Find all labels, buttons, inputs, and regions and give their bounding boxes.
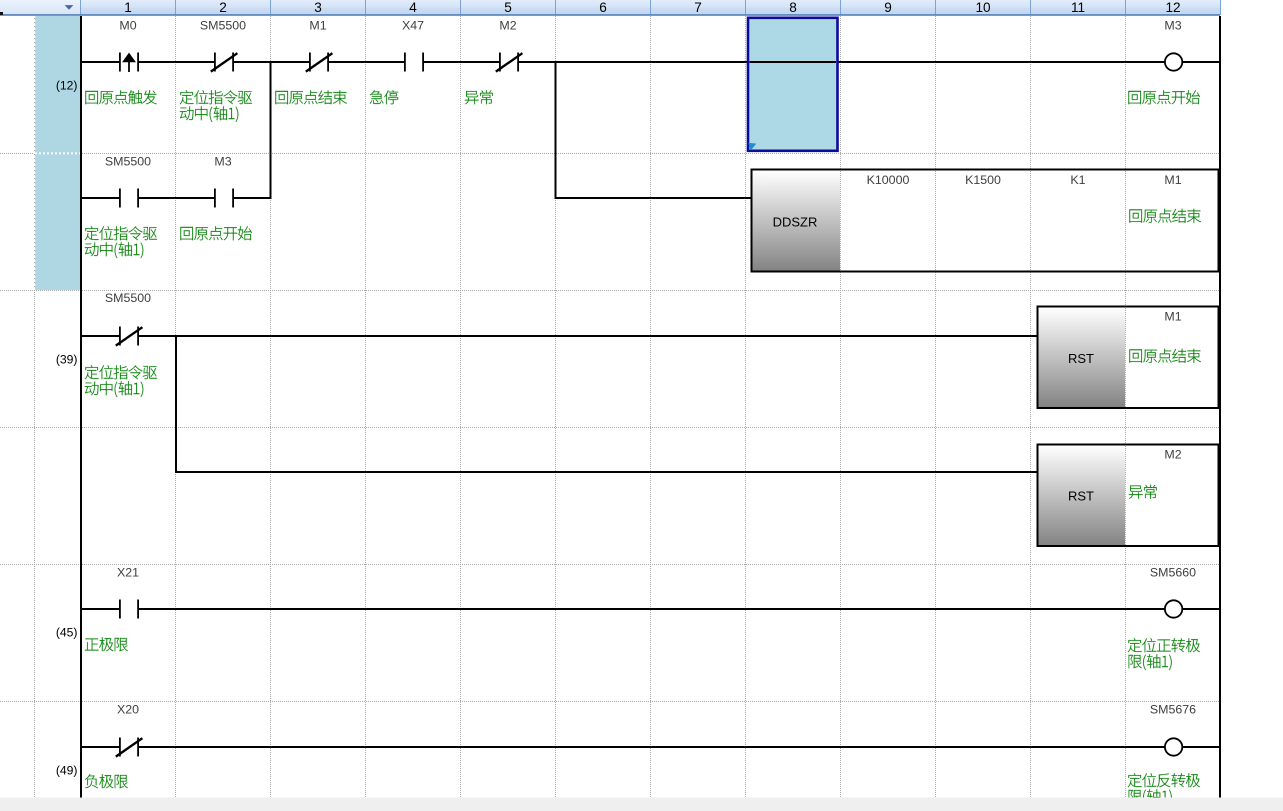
svg-text:M1: M1 — [1164, 173, 1181, 187]
svg-text:SM5676: SM5676 — [1150, 703, 1196, 717]
svg-text:1: 1 — [124, 0, 132, 15]
svg-text:M1: M1 — [1164, 310, 1181, 324]
svg-text:8: 8 — [789, 0, 797, 15]
svg-text:K10000: K10000 — [867, 173, 910, 187]
svg-text:2: 2 — [219, 0, 227, 15]
svg-text:SM5500: SM5500 — [105, 155, 151, 169]
svg-text:K1500: K1500 — [965, 173, 1001, 187]
svg-text:M3: M3 — [1164, 19, 1181, 33]
svg-text:SM5500: SM5500 — [200, 19, 246, 33]
svg-text:3: 3 — [314, 0, 322, 15]
svg-text:X20: X20 — [117, 703, 139, 717]
svg-text:M2: M2 — [499, 19, 516, 33]
svg-text:K1: K1 — [1070, 173, 1085, 187]
svg-text:4: 4 — [409, 0, 417, 15]
svg-text:X21: X21 — [117, 566, 139, 580]
svg-text:M1: M1 — [309, 19, 326, 33]
svg-text:(45): (45) — [56, 626, 78, 640]
svg-text:M3: M3 — [214, 155, 231, 169]
svg-text:DDSZR: DDSZR — [773, 215, 818, 230]
svg-text:12: 12 — [1165, 0, 1180, 15]
svg-text:SM5500: SM5500 — [105, 291, 151, 305]
svg-text:6: 6 — [599, 0, 607, 15]
svg-text:RST: RST — [1068, 489, 1094, 504]
svg-text:9: 9 — [884, 0, 892, 15]
svg-text:11: 11 — [1071, 0, 1085, 15]
svg-text:(49): (49) — [56, 764, 78, 778]
svg-text:RST: RST — [1068, 351, 1094, 366]
svg-text:(12): (12) — [56, 79, 78, 93]
svg-text:SM5660: SM5660 — [1150, 566, 1196, 580]
svg-text:M2: M2 — [1164, 448, 1181, 462]
svg-text:5: 5 — [504, 0, 512, 15]
svg-text:7: 7 — [694, 0, 702, 15]
svg-text:X47: X47 — [402, 19, 424, 33]
svg-text:M0: M0 — [119, 19, 136, 33]
svg-text:(39): (39) — [56, 353, 78, 367]
svg-text:10: 10 — [975, 0, 991, 15]
